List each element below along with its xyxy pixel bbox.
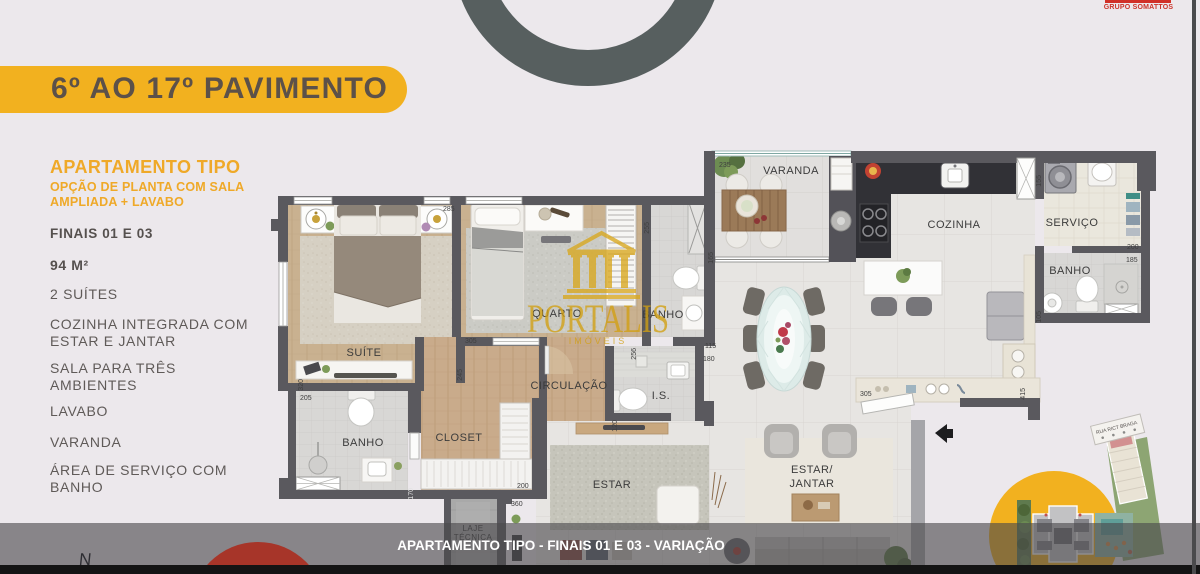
svg-text:ESTAR: ESTAR <box>593 479 631 491</box>
svg-text:115: 115 <box>705 343 716 350</box>
svg-text:305: 305 <box>465 338 477 345</box>
svg-text:200: 200 <box>1127 244 1139 251</box>
svg-text:CIRCULAÇÃO: CIRCULAÇÃO <box>530 379 607 392</box>
svg-text:320: 320 <box>298 379 305 391</box>
svg-text:105: 105 <box>1036 311 1043 323</box>
svg-text:SERVIÇO: SERVIÇO <box>1046 217 1099 229</box>
svg-text:170: 170 <box>408 488 415 500</box>
svg-text:JANTAR: JANTAR <box>790 478 835 490</box>
svg-text:256: 256 <box>631 348 638 360</box>
svg-text:SUÍTE: SUÍTE <box>347 346 382 359</box>
svg-text:165: 165 <box>708 252 715 264</box>
svg-text:180: 180 <box>703 356 715 363</box>
svg-text:305: 305 <box>860 391 872 398</box>
svg-text:235: 235 <box>719 162 731 169</box>
svg-text:BANHO: BANHO <box>342 437 384 449</box>
svg-text:120: 120 <box>612 420 619 432</box>
svg-text:285: 285 <box>443 206 455 213</box>
svg-text:IMÓVEIS: IMÓVEIS <box>569 336 628 346</box>
svg-text:185: 185 <box>1126 257 1138 264</box>
svg-text:200: 200 <box>517 483 529 490</box>
svg-text:245: 245 <box>457 369 464 381</box>
svg-text:PORTALIS: PORTALIS <box>527 296 669 341</box>
svg-text:205: 205 <box>300 395 312 402</box>
svg-text:ESTAR/: ESTAR/ <box>791 464 833 476</box>
svg-text:COZINHA: COZINHA <box>928 219 981 231</box>
svg-text:BANHO: BANHO <box>1049 265 1091 277</box>
svg-text:CLOSET: CLOSET <box>435 432 482 444</box>
svg-text:VARANDA: VARANDA <box>763 165 819 177</box>
svg-text:360: 360 <box>511 501 523 508</box>
svg-text:155: 155 <box>1036 175 1043 187</box>
svg-text:255: 255 <box>644 222 651 234</box>
svg-text:I.S.: I.S. <box>652 390 671 402</box>
